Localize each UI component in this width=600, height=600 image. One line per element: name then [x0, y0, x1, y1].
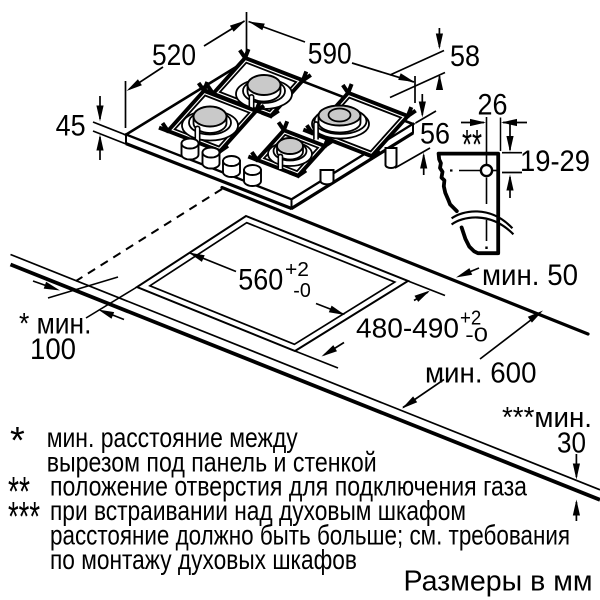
svg-text:100: 100: [30, 333, 76, 366]
svg-text:26: 26: [478, 89, 508, 122]
svg-text:-0: -0: [293, 280, 311, 302]
svg-text:Размеры в мм: Размеры в мм: [404, 566, 593, 598]
svg-text:45: 45: [56, 110, 86, 143]
svg-text:560: 560: [238, 264, 283, 297]
svg-text:590: 590: [308, 38, 352, 71]
svg-text:480-490: 480-490: [356, 313, 459, 344]
svg-text:**: **: [462, 121, 482, 168]
svg-text:30: 30: [557, 428, 586, 460]
svg-text:58: 58: [450, 40, 480, 73]
svg-text:+2: +2: [285, 259, 309, 281]
svg-text:по монтажу духовых шкафов: по монтажу духовых шкафов: [50, 544, 357, 575]
svg-text:*: *: [10, 420, 25, 462]
svg-text:-0: -0: [465, 325, 488, 347]
svg-text:56: 56: [420, 118, 450, 151]
svg-text:19-29: 19-29: [520, 145, 590, 178]
svg-text:520: 520: [152, 39, 196, 72]
svg-text:***: ***: [8, 493, 40, 540]
svg-text:мин. 50: мин. 50: [482, 259, 578, 292]
svg-text:мин. 600: мин. 600: [425, 358, 537, 390]
